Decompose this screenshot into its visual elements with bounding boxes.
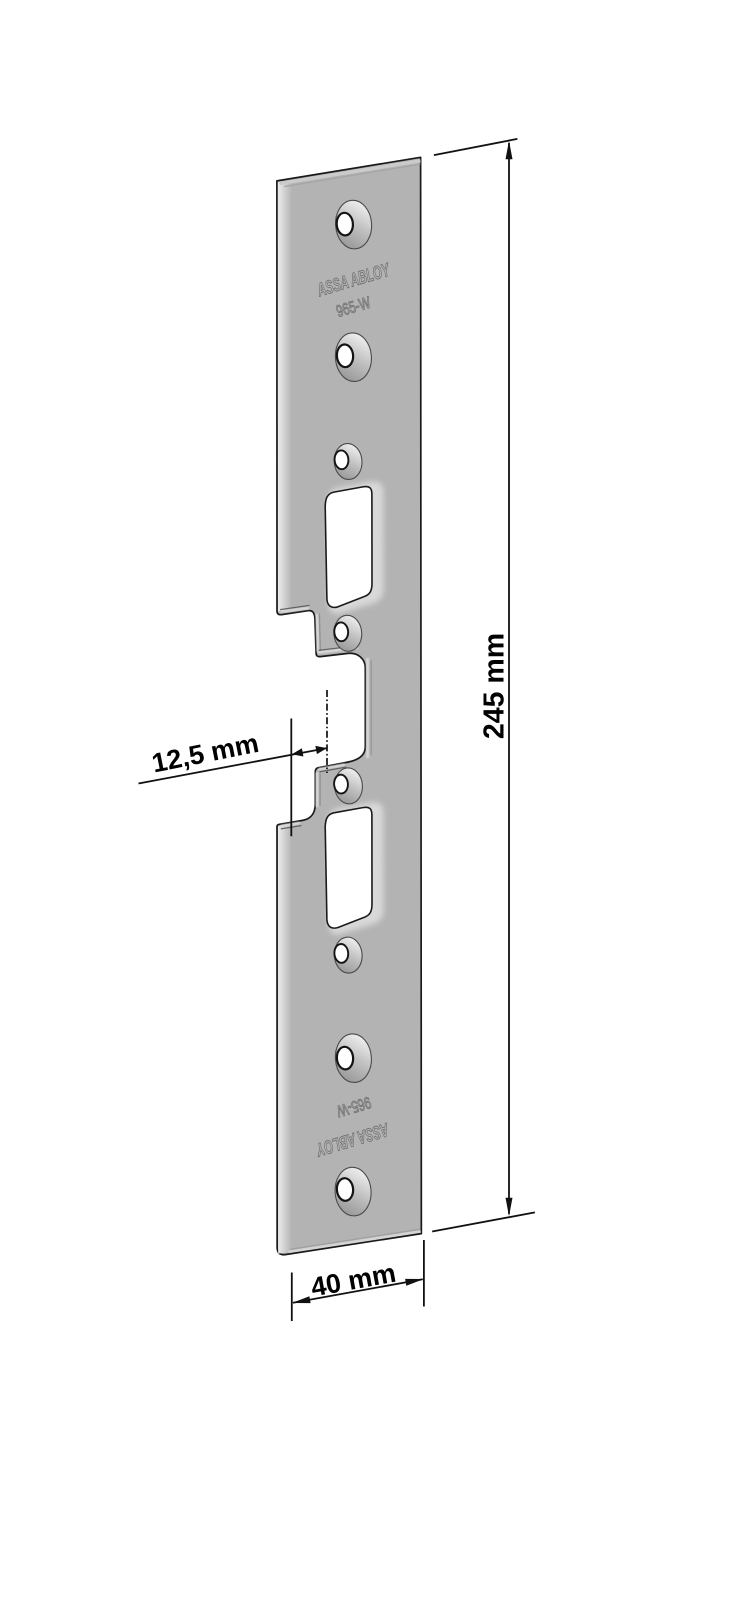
svg-text:245 mm: 245 mm [479,633,511,739]
